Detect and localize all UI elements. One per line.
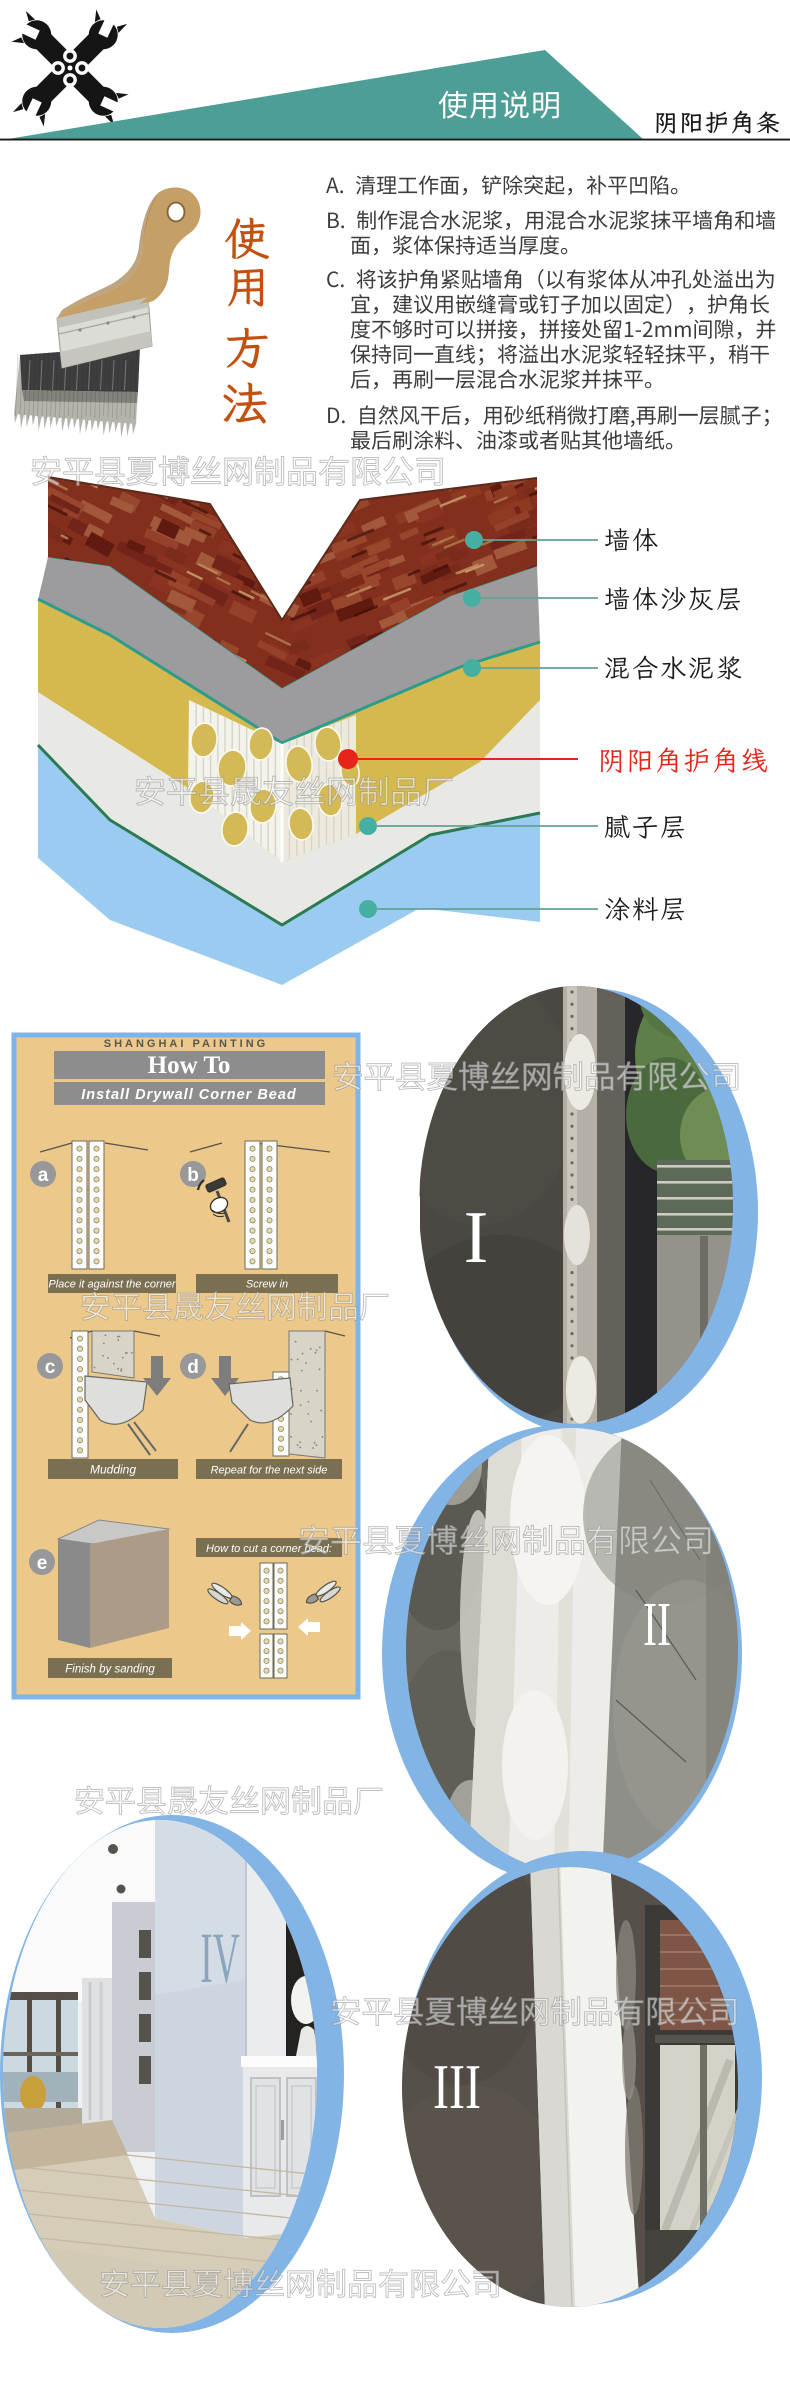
- svg-text:Install Drywall Corner Bead: Install Drywall Corner Bead: [81, 1087, 297, 1103]
- svg-text:Screw in: Screw in: [246, 1279, 288, 1291]
- svg-text:e: e: [37, 1553, 48, 1574]
- svg-text:a: a: [38, 1165, 49, 1186]
- svg-text:How To: How To: [148, 1052, 231, 1079]
- svg-text:Place it against the corner: Place it against the corner: [48, 1279, 177, 1291]
- svg-text:b: b: [187, 1165, 199, 1186]
- svg-text:SHANGHAI PAINTING: SHANGHAI PAINTING: [104, 1038, 268, 1050]
- svg-text:d: d: [187, 1357, 199, 1378]
- svg-text:II: II: [643, 1591, 671, 1659]
- svg-text:Repeat for the next side: Repeat for the next side: [211, 1465, 328, 1477]
- svg-text:III: III: [433, 2053, 481, 2123]
- svg-text:I: I: [464, 1197, 489, 1279]
- svg-text:IV: IV: [200, 1919, 240, 1998]
- svg-text:Finish by sanding: Finish by sanding: [65, 1664, 155, 1676]
- svg-text:c: c: [45, 1357, 56, 1378]
- svg-text:Mudding: Mudding: [90, 1463, 136, 1477]
